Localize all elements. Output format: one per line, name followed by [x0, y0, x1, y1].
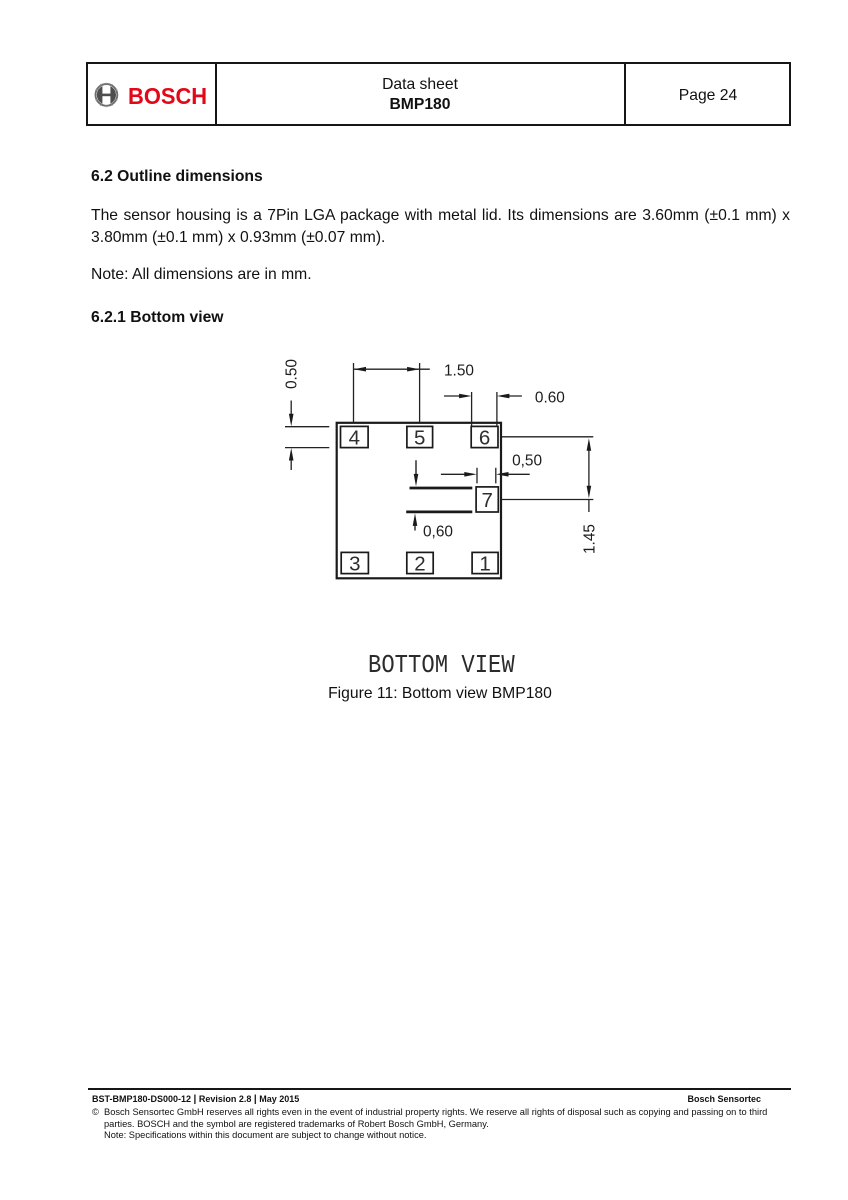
svg-text:1: 1	[479, 552, 490, 575]
svg-text:1.50: 1.50	[444, 363, 474, 380]
svg-text:2: 2	[414, 552, 425, 575]
svg-text:0.60: 0.60	[535, 389, 565, 406]
svg-text:0.50: 0.50	[284, 359, 301, 389]
svg-text:0,50: 0,50	[512, 453, 542, 470]
svg-text:6: 6	[479, 426, 490, 449]
svg-text:4: 4	[349, 426, 360, 449]
svg-text:5: 5	[414, 426, 425, 449]
svg-text:3: 3	[349, 552, 360, 575]
svg-text:1.45: 1.45	[582, 524, 599, 554]
svg-text:0,60: 0,60	[423, 524, 453, 541]
svg-text:7: 7	[481, 489, 492, 512]
